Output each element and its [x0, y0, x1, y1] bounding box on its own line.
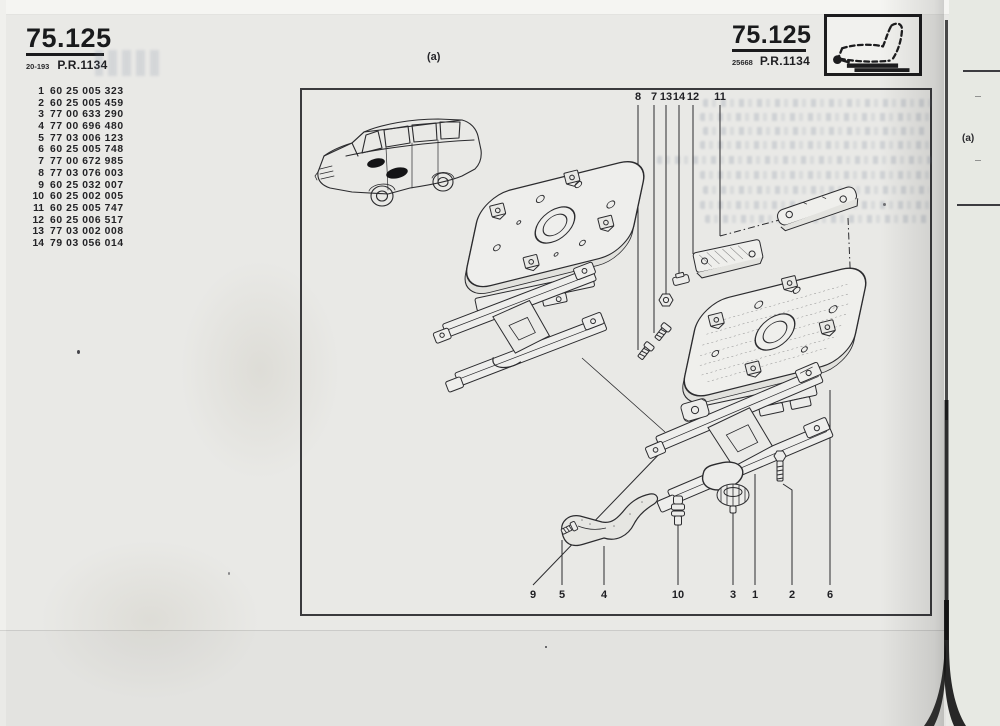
callout-number: 4	[601, 589, 607, 601]
part-ref: 12	[26, 215, 44, 227]
part-number: 60 25 006 517	[50, 215, 124, 227]
callout-number: 14	[673, 91, 685, 103]
parts-list-row: 260 25 005 459	[26, 98, 196, 110]
retaining-clip	[672, 271, 690, 286]
part-number: 60 25 002 005	[50, 191, 124, 203]
exploded-parts-drawing	[300, 88, 928, 612]
part-number: 60 25 005 323	[50, 86, 124, 98]
parts-list-row: 577 03 006 123	[26, 133, 196, 145]
parts-list-row: 160 25 005 323	[26, 86, 196, 98]
callout-number: 1	[752, 589, 758, 601]
callout-number: 10	[672, 589, 684, 601]
part-number: 60 25 032 007	[50, 180, 124, 192]
parts-list-row: 660 25 005 748	[26, 144, 196, 156]
part-number: 77 03 006 123	[50, 133, 124, 145]
part-ref: 13	[26, 226, 44, 238]
screw	[653, 322, 672, 342]
part-number: 77 03 002 008	[50, 226, 124, 238]
seat-base-plate-left	[436, 152, 678, 327]
part-ref: 4	[26, 121, 44, 133]
mounting-bracket-hatched	[693, 239, 765, 279]
part-ref: 1	[26, 86, 44, 98]
header-right: 75.125 25668 P.R.1134	[732, 22, 822, 68]
figure-label: (a)	[427, 51, 440, 63]
parts-list-row: 877 03 076 003	[26, 168, 196, 180]
hex-bolt	[774, 451, 786, 481]
parts-list-row: 1160 25 005 747	[26, 203, 196, 215]
adjuster-knob	[717, 484, 749, 513]
release-lever	[562, 494, 658, 546]
callout-number: 8	[635, 91, 641, 103]
paper-stain	[180, 260, 340, 480]
stepped-bolt	[672, 496, 685, 525]
part-number: 77 00 696 480	[50, 121, 124, 133]
parts-list-row: 777 00 672 985	[26, 156, 196, 168]
hex-nut	[659, 294, 673, 306]
part-number: 60 25 005 748	[50, 144, 124, 156]
callout-number: 9	[530, 589, 536, 601]
part-number: 60 25 005 459	[50, 98, 124, 110]
part-ref: 5	[26, 133, 44, 145]
part-ref: 6	[26, 144, 44, 156]
pr-number: P.R.1134	[760, 54, 810, 68]
callout-number: 13	[660, 91, 672, 103]
part-number: 60 25 005 747	[50, 203, 124, 215]
part-number: 77 00 633 290	[50, 109, 124, 121]
bracket-bar	[776, 185, 860, 232]
part-number: 77 03 076 003	[50, 168, 124, 180]
part-number: 79 03 056 014	[50, 238, 124, 250]
screw	[636, 341, 655, 361]
parts-list-row: 1060 25 002 005	[26, 191, 196, 203]
print-ref: 20-193	[26, 62, 49, 71]
parts-list-row: 1377 03 002 008	[26, 226, 196, 238]
header-underline	[26, 53, 104, 56]
callout-number: 3	[730, 589, 736, 601]
parts-list-row: 377 00 633 290	[26, 109, 196, 121]
callout-number: 6	[827, 589, 833, 601]
catalog-page: 75.125 20-193 P.R.1134 160 25 005 323 26…	[0, 0, 1000, 726]
bleed-ghost	[95, 50, 159, 76]
part-ref: 11	[26, 203, 44, 215]
callout-number: 12	[687, 91, 699, 103]
scan-left-edge	[0, 0, 6, 726]
parts-list-row: 960 25 032 007	[26, 180, 196, 192]
part-ref: 10	[26, 191, 44, 203]
print-ref: 25668	[732, 58, 753, 67]
parts-list-row: 1260 25 006 517	[26, 215, 196, 227]
part-ref: 8	[26, 168, 44, 180]
section-code: 75.125	[732, 22, 822, 48]
page-bottom-shading	[0, 630, 946, 726]
part-ref: 9	[26, 180, 44, 192]
parts-list: 160 25 005 323 260 25 005 459 377 00 633…	[26, 86, 196, 250]
callout-number: 11	[714, 91, 726, 103]
callout-number: 2	[789, 589, 795, 601]
part-ref: 2	[26, 98, 44, 110]
binding-edge	[920, 0, 1000, 726]
parts-list-row: 477 00 696 480	[26, 121, 196, 133]
callout-number: 5	[559, 589, 565, 601]
callout-number: 7	[651, 91, 657, 103]
section-code: 75.125	[26, 24, 156, 52]
scan-top-edge	[0, 0, 1000, 15]
parts-list-row: 1479 03 056 014	[26, 238, 196, 250]
paper-speck	[77, 350, 80, 354]
part-ref: 14	[26, 238, 44, 250]
header-underline	[732, 49, 806, 52]
part-ref: 3	[26, 109, 44, 121]
part-ref: 7	[26, 156, 44, 168]
part-number: 77 00 672 985	[50, 156, 124, 168]
